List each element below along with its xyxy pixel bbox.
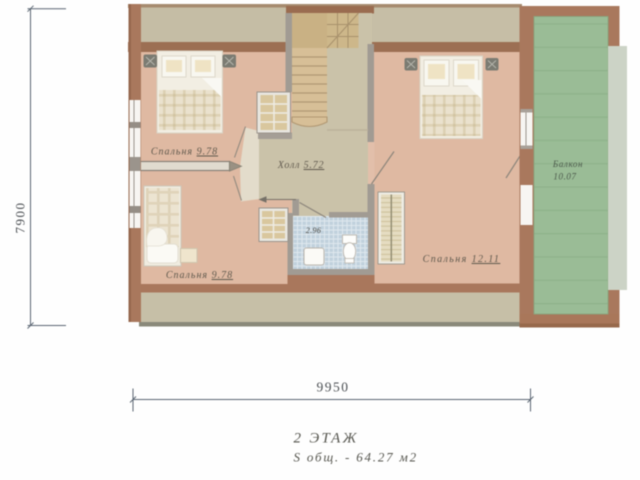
- svg-text:Балкон: Балкон: [552, 159, 583, 169]
- svg-text:Спальня 12.11: Спальня 12.11: [423, 254, 501, 265]
- svg-text:2 ЭТАЖ: 2 ЭТАЖ: [294, 431, 359, 447]
- svg-text:Спальня 9.78: Спальня 9.78: [166, 270, 233, 281]
- svg-text:10.07: 10.07: [553, 172, 576, 182]
- svg-text:S общ. - 64.27 м2: S общ. - 64.27 м2: [294, 450, 418, 465]
- svg-text:9950: 9950: [317, 380, 350, 395]
- svg-text:2.96: 2.96: [306, 226, 322, 235]
- svg-text:7900: 7900: [13, 202, 28, 234]
- svg-text:Холл 5.72: Холл 5.72: [277, 160, 325, 171]
- svg-text:Спальня 9.78: Спальня 9.78: [151, 147, 218, 158]
